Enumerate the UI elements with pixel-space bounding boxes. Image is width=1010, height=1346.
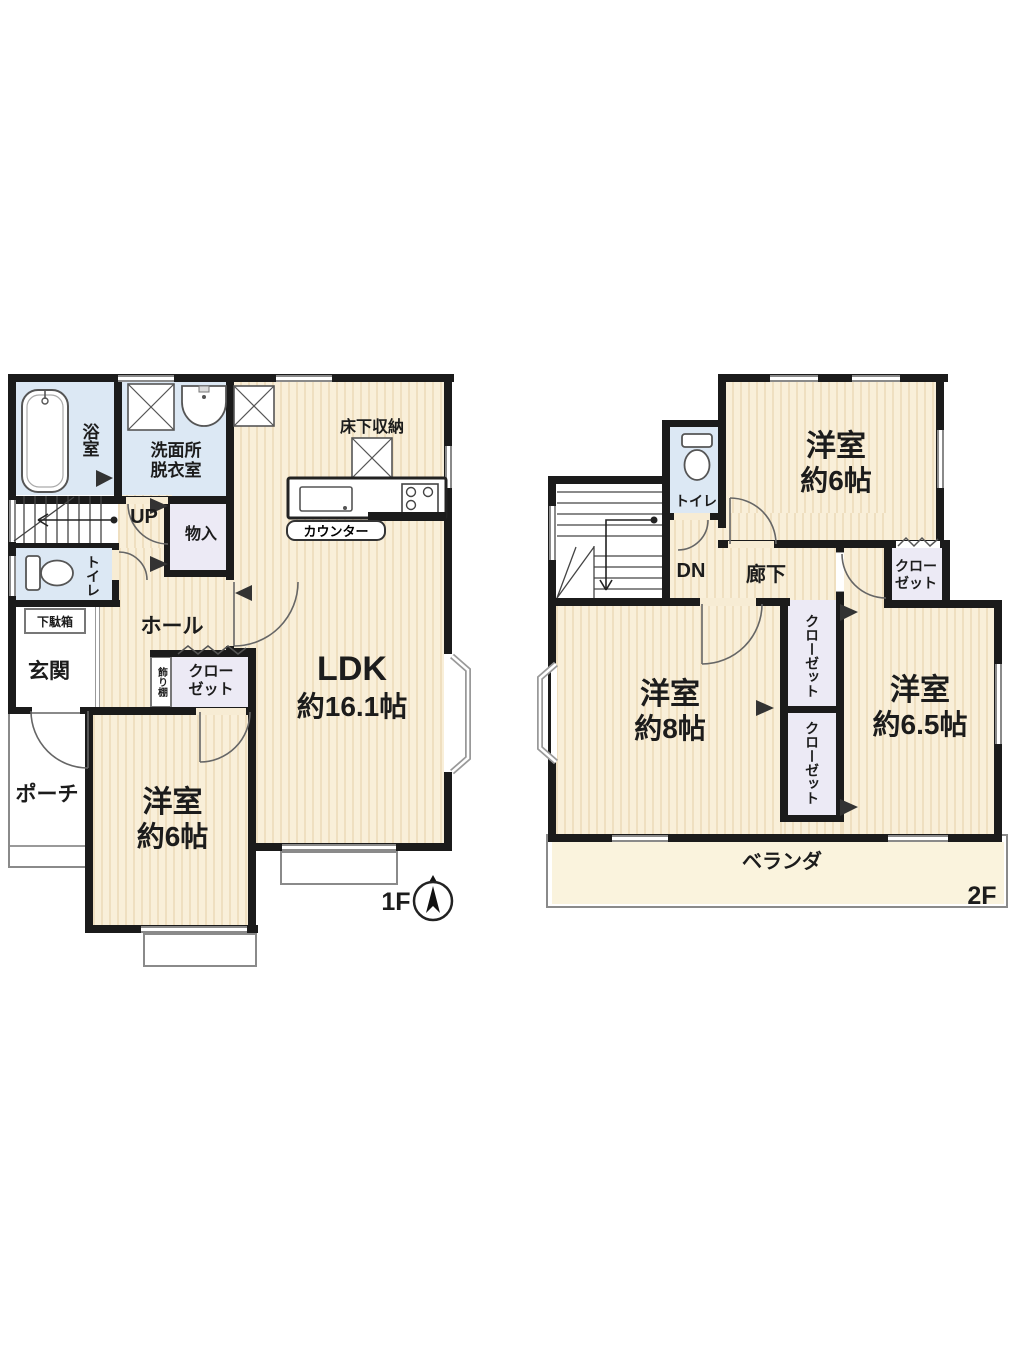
toilet-icon-2f bbox=[682, 434, 712, 480]
floor1-label: 1F bbox=[372, 886, 420, 918]
hall-label: ホール bbox=[134, 612, 210, 638]
shoe-cabinet-label: 下駄箱 bbox=[24, 608, 86, 634]
storage-label: 物入 bbox=[176, 520, 226, 544]
washer-icon bbox=[128, 384, 174, 430]
bedroom-8-2f-line1: 洋室 bbox=[640, 677, 700, 712]
bay-window-icon-1f bbox=[452, 656, 468, 772]
bedroom-8-2f-label: 洋室 約8帖 bbox=[590, 666, 750, 756]
closet-2f-lower-col1: クロー bbox=[802, 721, 822, 763]
toilet-label-2f: トイレ bbox=[668, 490, 724, 512]
counter-label: カウンター bbox=[286, 520, 386, 541]
underfloor-storage-label: 床下収納 bbox=[330, 414, 414, 436]
washroom-label-line1: 洗面所 bbox=[151, 441, 202, 461]
ldk-label: LDK 約16.1帖 bbox=[262, 646, 442, 726]
closet-2f-lower-label: クロー ゼット bbox=[788, 716, 836, 810]
toilet-label-1f: トイレ bbox=[82, 548, 104, 604]
bedroom-6-1f-line2: 約6帖 bbox=[137, 820, 209, 853]
closet-1f-label-line1: クロー bbox=[188, 663, 233, 681]
bedroom-6-1f-line1: 洋室 bbox=[143, 785, 203, 820]
floor2-label: 2F bbox=[958, 880, 1006, 912]
bedroom-6-2f-line2: 約6帖 bbox=[800, 464, 872, 497]
corridor-label: 廊下 bbox=[738, 560, 794, 584]
washroom-label: 洗面所 脱衣室 bbox=[126, 434, 226, 488]
bedroom-8-2f-line2: 約8帖 bbox=[634, 712, 706, 745]
ldk-label-line2: 約16.1帖 bbox=[297, 690, 408, 723]
stairs-2f-treads bbox=[557, 492, 662, 598]
bifold-door-icon bbox=[178, 646, 246, 654]
bedroom-65-2f-label: 洋室 約6.5帖 bbox=[832, 662, 1008, 752]
closet-2f-right-line1: クロー bbox=[895, 558, 937, 575]
sliding-door-markers-1f bbox=[96, 470, 252, 601]
toilet-icon-1f bbox=[26, 556, 73, 590]
down-label: DN bbox=[668, 558, 714, 584]
stairs-2f-arrow bbox=[600, 517, 658, 591]
closet-1f-label-line2: ゼット bbox=[188, 681, 233, 699]
bedroom-65-2f-line2: 約6.5帖 bbox=[873, 708, 968, 741]
underfloor-storage-hatch bbox=[352, 438, 392, 478]
veranda-label: ベランダ bbox=[728, 846, 836, 872]
closet-2f-upper-col1: クロー bbox=[802, 614, 822, 656]
sink-icon bbox=[182, 386, 226, 426]
bedroom-6-2f-label: 洋室 約6帖 bbox=[736, 418, 936, 508]
closet-2f-right-label: クロー ゼット bbox=[888, 550, 944, 600]
bifold-door-icon bbox=[898, 538, 938, 546]
porch-label: ポーチ bbox=[12, 780, 82, 806]
stairs-1f-arrow bbox=[38, 514, 118, 526]
display-shelf-label: 飾り棚 bbox=[151, 658, 171, 706]
bathtub-icon bbox=[22, 390, 68, 492]
storage-hatch-icon bbox=[234, 386, 274, 426]
closet-2f-upper-label: クロー ゼット bbox=[788, 610, 836, 702]
up-label: UP bbox=[122, 504, 166, 530]
bedroom-6-1f-label: 洋室 約6帖 bbox=[110, 776, 235, 862]
kitchen-counter bbox=[288, 478, 446, 521]
closet-2f-upper-col2: ゼット bbox=[802, 656, 822, 698]
closet-2f-lower-col2: ゼット bbox=[802, 763, 822, 805]
ldk-label-line1: LDK bbox=[317, 649, 387, 689]
entrance-label: 玄関 bbox=[20, 656, 78, 684]
closet-1f-label: クロー ゼット bbox=[174, 658, 248, 704]
washroom-label-line2: 脱衣室 bbox=[151, 461, 202, 481]
stove-icon bbox=[402, 484, 438, 514]
bath-label: 浴室 bbox=[76, 408, 102, 472]
floorplan-canvas: 浴室 洗面所 脱衣室 床下収納 カウンター LDK 約16.1帖 UP 物入 ト… bbox=[0, 0, 1010, 1346]
closet-2f-right-line2: ゼット bbox=[895, 575, 937, 592]
bedroom-6-2f-line1: 洋室 bbox=[806, 429, 866, 464]
bedroom-65-2f-line1: 洋室 bbox=[890, 673, 950, 708]
bay-window-icon-2f bbox=[540, 664, 556, 762]
